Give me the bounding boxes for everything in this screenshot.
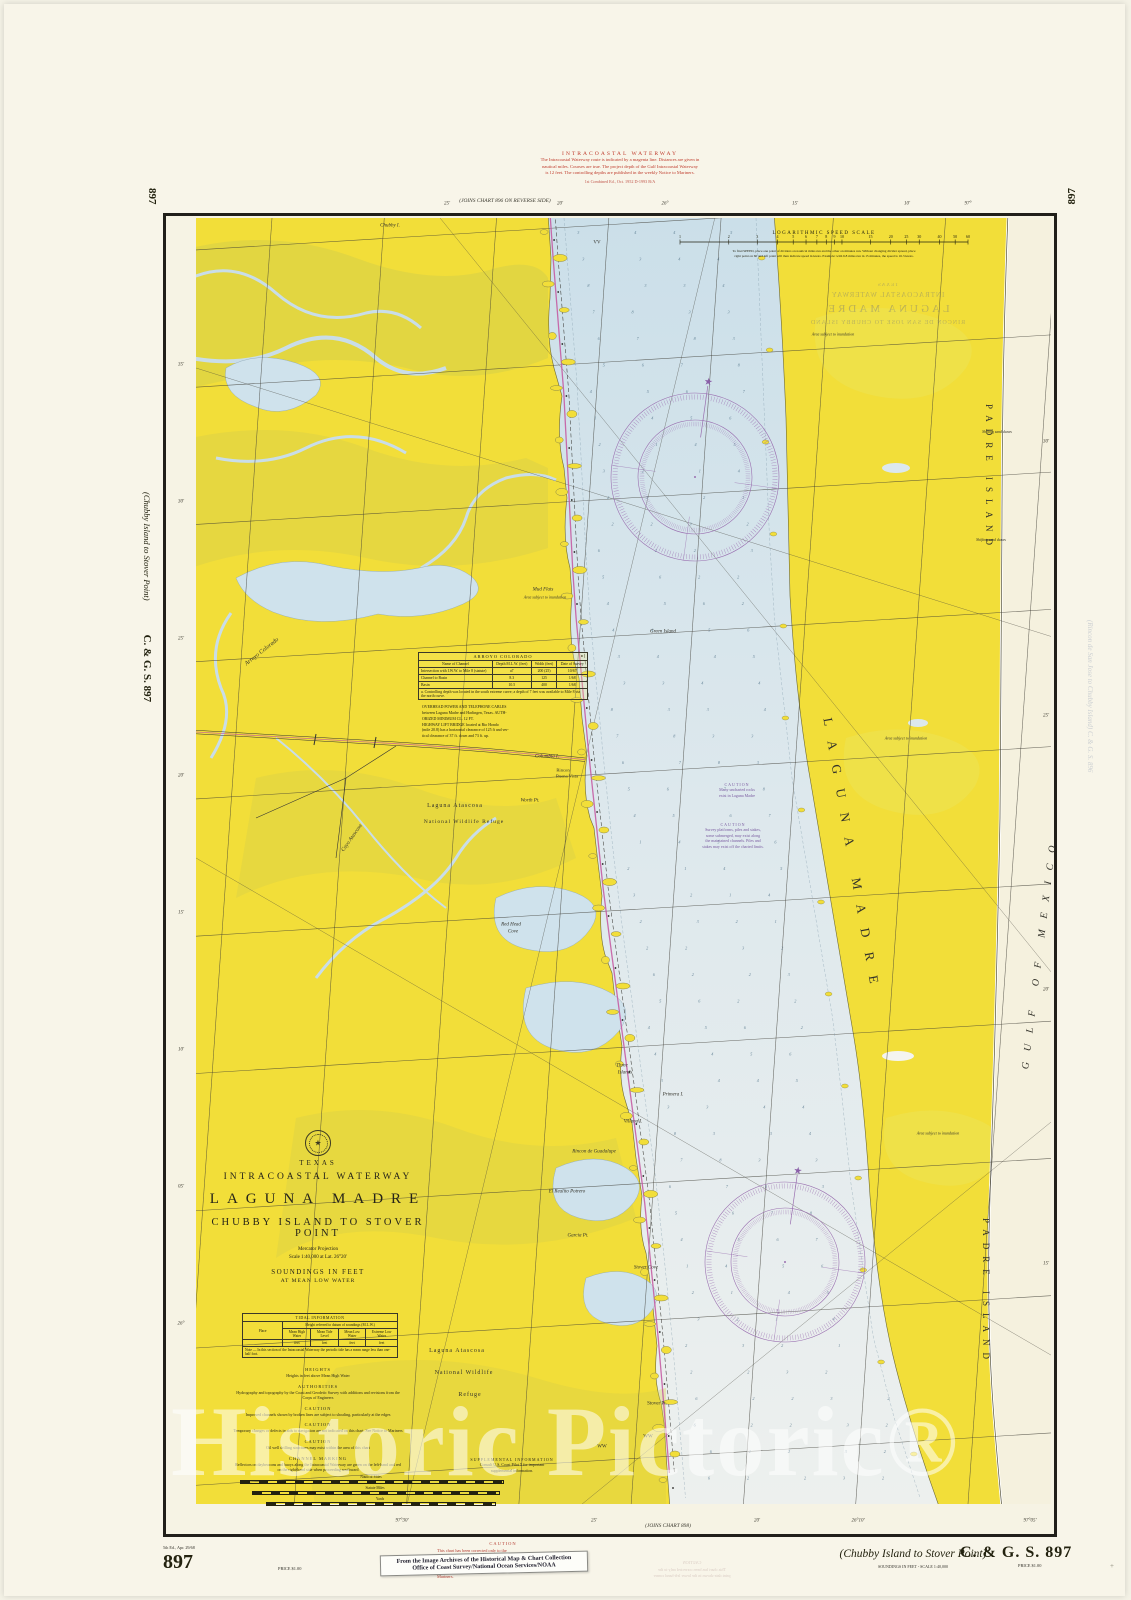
svg-text:3: 3 — [646, 495, 648, 500]
footer-caution-title: CAUTION — [437, 1541, 569, 1548]
svg-text:2: 2 — [790, 1423, 792, 1428]
svg-text:4: 4 — [777, 234, 779, 239]
svg-text:4: 4 — [634, 813, 636, 818]
svg-text:4: 4 — [654, 1052, 656, 1057]
svg-text:4: 4 — [725, 1264, 727, 1269]
title-waterway: INTRACOASTAL WATERWAY — [208, 1172, 428, 1182]
svg-text:5: 5 — [708, 628, 710, 633]
svg-text:2: 2 — [747, 1476, 749, 1481]
svg-text:4: 4 — [607, 601, 609, 606]
svg-text:4: 4 — [768, 893, 770, 898]
svg-text:2: 2 — [692, 972, 694, 977]
svg-text:2: 2 — [752, 1396, 754, 1401]
svg-text:3: 3 — [668, 707, 670, 712]
svg-text:2: 2 — [781, 946, 783, 951]
note-section: CHANNEL MARKINGReflectors on daybeacons … — [233, 1456, 403, 1473]
svg-text:40: 40 — [937, 234, 941, 239]
svg-text:3: 3 — [788, 972, 790, 977]
svg-text:2: 2 — [642, 469, 644, 474]
svg-text:30: 30 — [917, 234, 921, 239]
svg-text:2: 2 — [646, 946, 648, 951]
svg-text:20: 20 — [889, 234, 893, 239]
svg-text:4: 4 — [757, 1078, 759, 1083]
svg-text:5: 5 — [753, 654, 755, 659]
svg-text:3: 3 — [689, 310, 691, 315]
svg-text:3: 3 — [830, 1396, 832, 1401]
svg-text:2: 2 — [692, 1290, 694, 1295]
svg-text:5: 5 — [750, 1052, 752, 1057]
joins-chart-bottom-label: (JOINS CHART 898) — [645, 1523, 691, 1529]
scale-bar — [266, 1502, 496, 1506]
chart-subtitle: CHUBBY ISLAND TO STOVER POINT — [208, 1217, 428, 1239]
svg-text:25: 25 — [904, 234, 908, 239]
svg-text:LOGARITHMIC SPEED SCALE: LOGARITHMIC SPEED SCALE — [772, 231, 875, 236]
scale-bar-label: Yards — [376, 1497, 384, 1501]
svg-text:1: 1 — [729, 893, 731, 898]
svg-text:3: 3 — [742, 1343, 744, 1348]
svg-text:3: 3 — [713, 1131, 715, 1136]
svg-text:2: 2 — [791, 1396, 793, 1401]
svg-text:3: 3 — [639, 257, 641, 262]
soundings-unit-note: SOUNDINGS IN FEET — [208, 1268, 428, 1276]
cables-bridge-note: OVERHEAD POWER AND TELEPHONE CABLESbetwe… — [418, 705, 588, 740]
svg-text:3: 3 — [683, 283, 685, 288]
svg-text:5: 5 — [647, 389, 649, 394]
svg-text:5: 5 — [603, 363, 605, 368]
projection-note: Mercator Projection — [298, 1247, 338, 1252]
svg-text:3: 3 — [712, 734, 714, 739]
right-margin-sheet-number: 897 — [1066, 188, 1078, 205]
svg-text:3: 3 — [751, 734, 753, 739]
svg-text:3: 3 — [822, 1184, 824, 1189]
svg-text:5: 5 — [628, 787, 630, 792]
left-margin-subtitle: (Chubby Island to Stover Point) — [142, 492, 152, 601]
svg-text:1: 1 — [686, 1264, 688, 1269]
svg-text:3: 3 — [577, 230, 579, 235]
north-star-icon: ★ — [793, 1165, 803, 1177]
svg-text:2: 2 — [886, 1423, 888, 1428]
svg-text:3: 3 — [690, 522, 692, 527]
svg-text:2: 2 — [627, 866, 629, 871]
svg-text:2: 2 — [749, 972, 751, 977]
note-section: CAUTIONOil well drilling structures may … — [233, 1439, 403, 1451]
svg-text:1: 1 — [838, 1343, 840, 1348]
svg-text:3: 3 — [728, 310, 730, 315]
svg-text:2: 2 — [882, 1476, 884, 1481]
svg-text:2: 2 — [685, 946, 687, 951]
svg-text:4: 4 — [590, 389, 592, 394]
svg-text:4: 4 — [714, 654, 716, 659]
svg-text:5: 5 — [675, 1211, 677, 1216]
svg-text:1: 1 — [731, 1290, 733, 1295]
svg-text:3: 3 — [662, 681, 664, 686]
svg-text:3: 3 — [706, 1105, 708, 1110]
reverse-side-showthrough-title: TEXASINTRACOASTAL WATERWAYLAGUNA MADRERI… — [780, 282, 995, 328]
svg-text:5: 5 — [705, 1025, 707, 1030]
scale-bar-label: Statute Miles — [365, 1486, 384, 1490]
svg-text:9: 9 — [834, 234, 836, 239]
scale-bar — [240, 1480, 504, 1484]
price-right: PRICE $1.00 — [1018, 1563, 1041, 1568]
scale-bar — [252, 1491, 500, 1495]
svg-text:2: 2 — [612, 522, 614, 527]
svg-text:3: 3 — [667, 1105, 669, 1110]
svg-text:3: 3 — [770, 1131, 772, 1136]
svg-text:2: 2 — [804, 1476, 806, 1481]
svg-text:3: 3 — [623, 681, 625, 686]
register-cross-mark: + — [1110, 1562, 1114, 1570]
svg-text:4: 4 — [802, 1105, 804, 1110]
chart-title-block: TEXAS INTRACOASTAL WATERWAY LAGUNA MADRE… — [208, 1130, 428, 1284]
map-canvas: 3445334483347833678356784567145621453214… — [196, 218, 1051, 1504]
svg-text:2: 2 — [747, 522, 749, 527]
svg-text:3: 3 — [845, 1449, 847, 1454]
svg-text:2: 2 — [651, 522, 653, 527]
svg-text:1: 1 — [684, 866, 686, 871]
svg-text:5: 5 — [659, 999, 661, 1004]
scale-bar-label: Nautical Miles — [360, 1475, 381, 1479]
svg-text:4: 4 — [651, 628, 653, 633]
svg-text:10: 10 — [840, 234, 844, 239]
note-section: CAUTIONImproved channels shown by broken… — [233, 1406, 403, 1418]
left-margin-title: (Chubby Island to Stover Point) C. & G. … — [138, 492, 156, 772]
svg-text:60: 60 — [966, 234, 970, 239]
svg-text:3: 3 — [707, 707, 709, 712]
svg-text:1: 1 — [699, 469, 701, 474]
svg-text:2: 2 — [737, 575, 739, 580]
svg-text:2: 2 — [737, 999, 739, 1004]
svg-text:3: 3 — [633, 893, 635, 898]
svg-text:4: 4 — [612, 628, 614, 633]
svg-text:5: 5 — [780, 866, 782, 871]
svg-text:5: 5 — [782, 1264, 784, 1269]
svg-text:5: 5 — [792, 234, 794, 239]
chart-notes-column: HEIGHTSHeights in feet above Mean High W… — [233, 1362, 403, 1473]
svg-text:4: 4 — [718, 1078, 720, 1083]
logarithmic-speed-scale: LOGARITHMIC SPEED SCALE 1234567891015202… — [672, 226, 976, 258]
svg-text:3: 3 — [847, 1423, 849, 1428]
soundings-datum-note: AT MEAN LOW WATER — [208, 1278, 428, 1284]
svg-text:1: 1 — [775, 919, 777, 924]
svg-text:4: 4 — [678, 840, 680, 845]
svg-text:3: 3 — [582, 257, 584, 262]
svg-text:4: 4 — [711, 1052, 713, 1057]
svg-text:5: 5 — [690, 416, 692, 421]
intracoastal-note-body: The Intracoastal Waterway route is indic… — [440, 157, 800, 177]
svg-text:4: 4 — [701, 681, 703, 686]
svg-text:1: 1 — [594, 416, 596, 421]
svg-text:2: 2 — [742, 601, 744, 606]
svg-text:4: 4 — [763, 1105, 765, 1110]
svg-text:2: 2 — [749, 1449, 751, 1454]
svg-text:4: 4 — [738, 469, 740, 474]
svg-text:1: 1 — [679, 234, 681, 239]
svg-text:2: 2 — [690, 893, 692, 898]
svg-text:3: 3 — [603, 469, 605, 474]
svg-text:4: 4 — [648, 1025, 650, 1030]
svg-text:3: 3 — [815, 1158, 817, 1163]
svg-text:2: 2 — [728, 234, 730, 239]
svg-text:3: 3 — [742, 946, 744, 951]
svg-text:2: 2 — [825, 1370, 827, 1375]
arroyo-colorado-table: ARROYO COLORADOName of ChannelDepth M.L.… — [418, 652, 588, 740]
note-section: CAUTIONTemporary changes or defects in a… — [233, 1422, 403, 1434]
svg-text:2: 2 — [884, 1449, 886, 1454]
footer-soundings-note: SOUNDINGS IN FEET - SCALE 1:40,000 — [828, 1564, 998, 1569]
svg-text:2: 2 — [788, 1449, 790, 1454]
svg-text:5: 5 — [602, 575, 604, 580]
svg-text:2: 2 — [640, 919, 642, 924]
scanned-chart-page: INTRACOASTAL WATERWAY The Intracoastal W… — [0, 0, 1131, 1600]
reverse-side-showthrough-footer: CAUTIONThis chart has been corrected onl… — [612, 1560, 772, 1580]
scale-note: Scale 1:40,000 at Lat. 26°20' — [289, 1255, 347, 1260]
price-left: PRICE $1.00 — [278, 1566, 301, 1571]
left-margin-sheet-number: 897 — [146, 188, 158, 205]
svg-text:8: 8 — [825, 234, 827, 239]
svg-text:3: 3 — [756, 234, 758, 239]
svg-text:50: 50 — [953, 234, 957, 239]
svg-text:4: 4 — [657, 654, 659, 659]
svg-text:5: 5 — [734, 442, 736, 447]
svg-text:4: 4 — [722, 283, 724, 288]
svg-text:5: 5 — [673, 813, 675, 818]
svg-text:2: 2 — [781, 1343, 783, 1348]
svg-text:2: 2 — [690, 1370, 692, 1375]
svg-text:15: 15 — [868, 234, 872, 239]
svg-text:2: 2 — [599, 442, 601, 447]
svg-text:3: 3 — [843, 1476, 845, 1481]
svg-text:1: 1 — [639, 840, 641, 845]
svg-text:7: 7 — [816, 234, 818, 239]
svg-text:3: 3 — [733, 336, 735, 341]
svg-text:3: 3 — [618, 654, 620, 659]
svg-text:4: 4 — [651, 416, 653, 421]
svg-text:3: 3 — [644, 283, 646, 288]
svg-text:5: 5 — [664, 601, 666, 606]
joins-chart-top-label: (JOINS CHART 896 ON REVERSE SIDE) — [459, 198, 550, 204]
north-star-icon: ★ — [703, 376, 713, 388]
svg-text:3: 3 — [758, 1158, 760, 1163]
intracoastal-note: INTRACOASTAL WATERWAY The Intracoastal W… — [440, 151, 800, 184]
svg-text:2: 2 — [751, 1423, 753, 1428]
svg-text:6: 6 — [805, 234, 807, 239]
svg-text:4: 4 — [788, 1290, 790, 1295]
svg-text:3: 3 — [661, 1078, 663, 1083]
svg-text:2: 2 — [887, 1396, 889, 1401]
svg-text:3: 3 — [786, 1370, 788, 1375]
chart-main-title: LAGUNA MADRE — [208, 1191, 428, 1208]
svg-text:2: 2 — [747, 1370, 749, 1375]
svg-text:4: 4 — [809, 1131, 811, 1136]
svg-text:right point on 60 and left poi: right point on 60 and left point will th… — [734, 254, 913, 258]
svg-text:4: 4 — [758, 681, 760, 686]
svg-text:3: 3 — [757, 760, 759, 765]
coast-geodetic-survey-seal-icon — [305, 1130, 331, 1156]
svg-text:2: 2 — [694, 548, 696, 553]
edition-line: 1st Combined Ed., Oct. 1952 D-1993 B/A — [440, 179, 800, 184]
svg-text:2: 2 — [607, 495, 609, 500]
svg-text:3: 3 — [697, 1317, 699, 1322]
svg-text:4: 4 — [681, 1237, 683, 1242]
note-section: HEIGHTSHeights in feet above Mean High W… — [233, 1367, 403, 1379]
svg-text:5: 5 — [717, 840, 719, 845]
svg-text:5: 5 — [796, 1078, 798, 1083]
tidal-information-table: TIDAL INFORMATIONPlaceHeight referred to… — [242, 1313, 398, 1358]
svg-text:3: 3 — [697, 919, 699, 924]
svg-text:4: 4 — [634, 230, 636, 235]
title-state: TEXAS — [208, 1159, 428, 1167]
svg-text:2: 2 — [736, 919, 738, 924]
sheet-number: 897 — [163, 1551, 193, 1574]
svg-text:1: 1 — [742, 495, 744, 500]
right-margin-showthrough: (Rincon de San Jose to Chubby Island) C.… — [1086, 620, 1094, 1040]
svg-text:2: 2 — [685, 1343, 687, 1348]
svg-text:4: 4 — [723, 866, 725, 871]
svg-text:4: 4 — [764, 707, 766, 712]
chart-id: C. & G. S. 897 — [960, 1544, 1072, 1562]
svg-text:4: 4 — [695, 442, 697, 447]
svg-text:2: 2 — [801, 1025, 803, 1030]
svg-text:2: 2 — [698, 575, 700, 580]
svg-text:3: 3 — [751, 548, 753, 553]
edition-date-note: 5th Ed., Apr. 29/68 — [163, 1545, 195, 1550]
note-section: AUTHORITIESHydrography and topography by… — [233, 1384, 403, 1401]
svg-text:2: 2 — [794, 999, 796, 1004]
svg-text:2: 2 — [703, 495, 705, 500]
left-margin-chart-id: C. & G. S. 897 — [141, 635, 153, 703]
